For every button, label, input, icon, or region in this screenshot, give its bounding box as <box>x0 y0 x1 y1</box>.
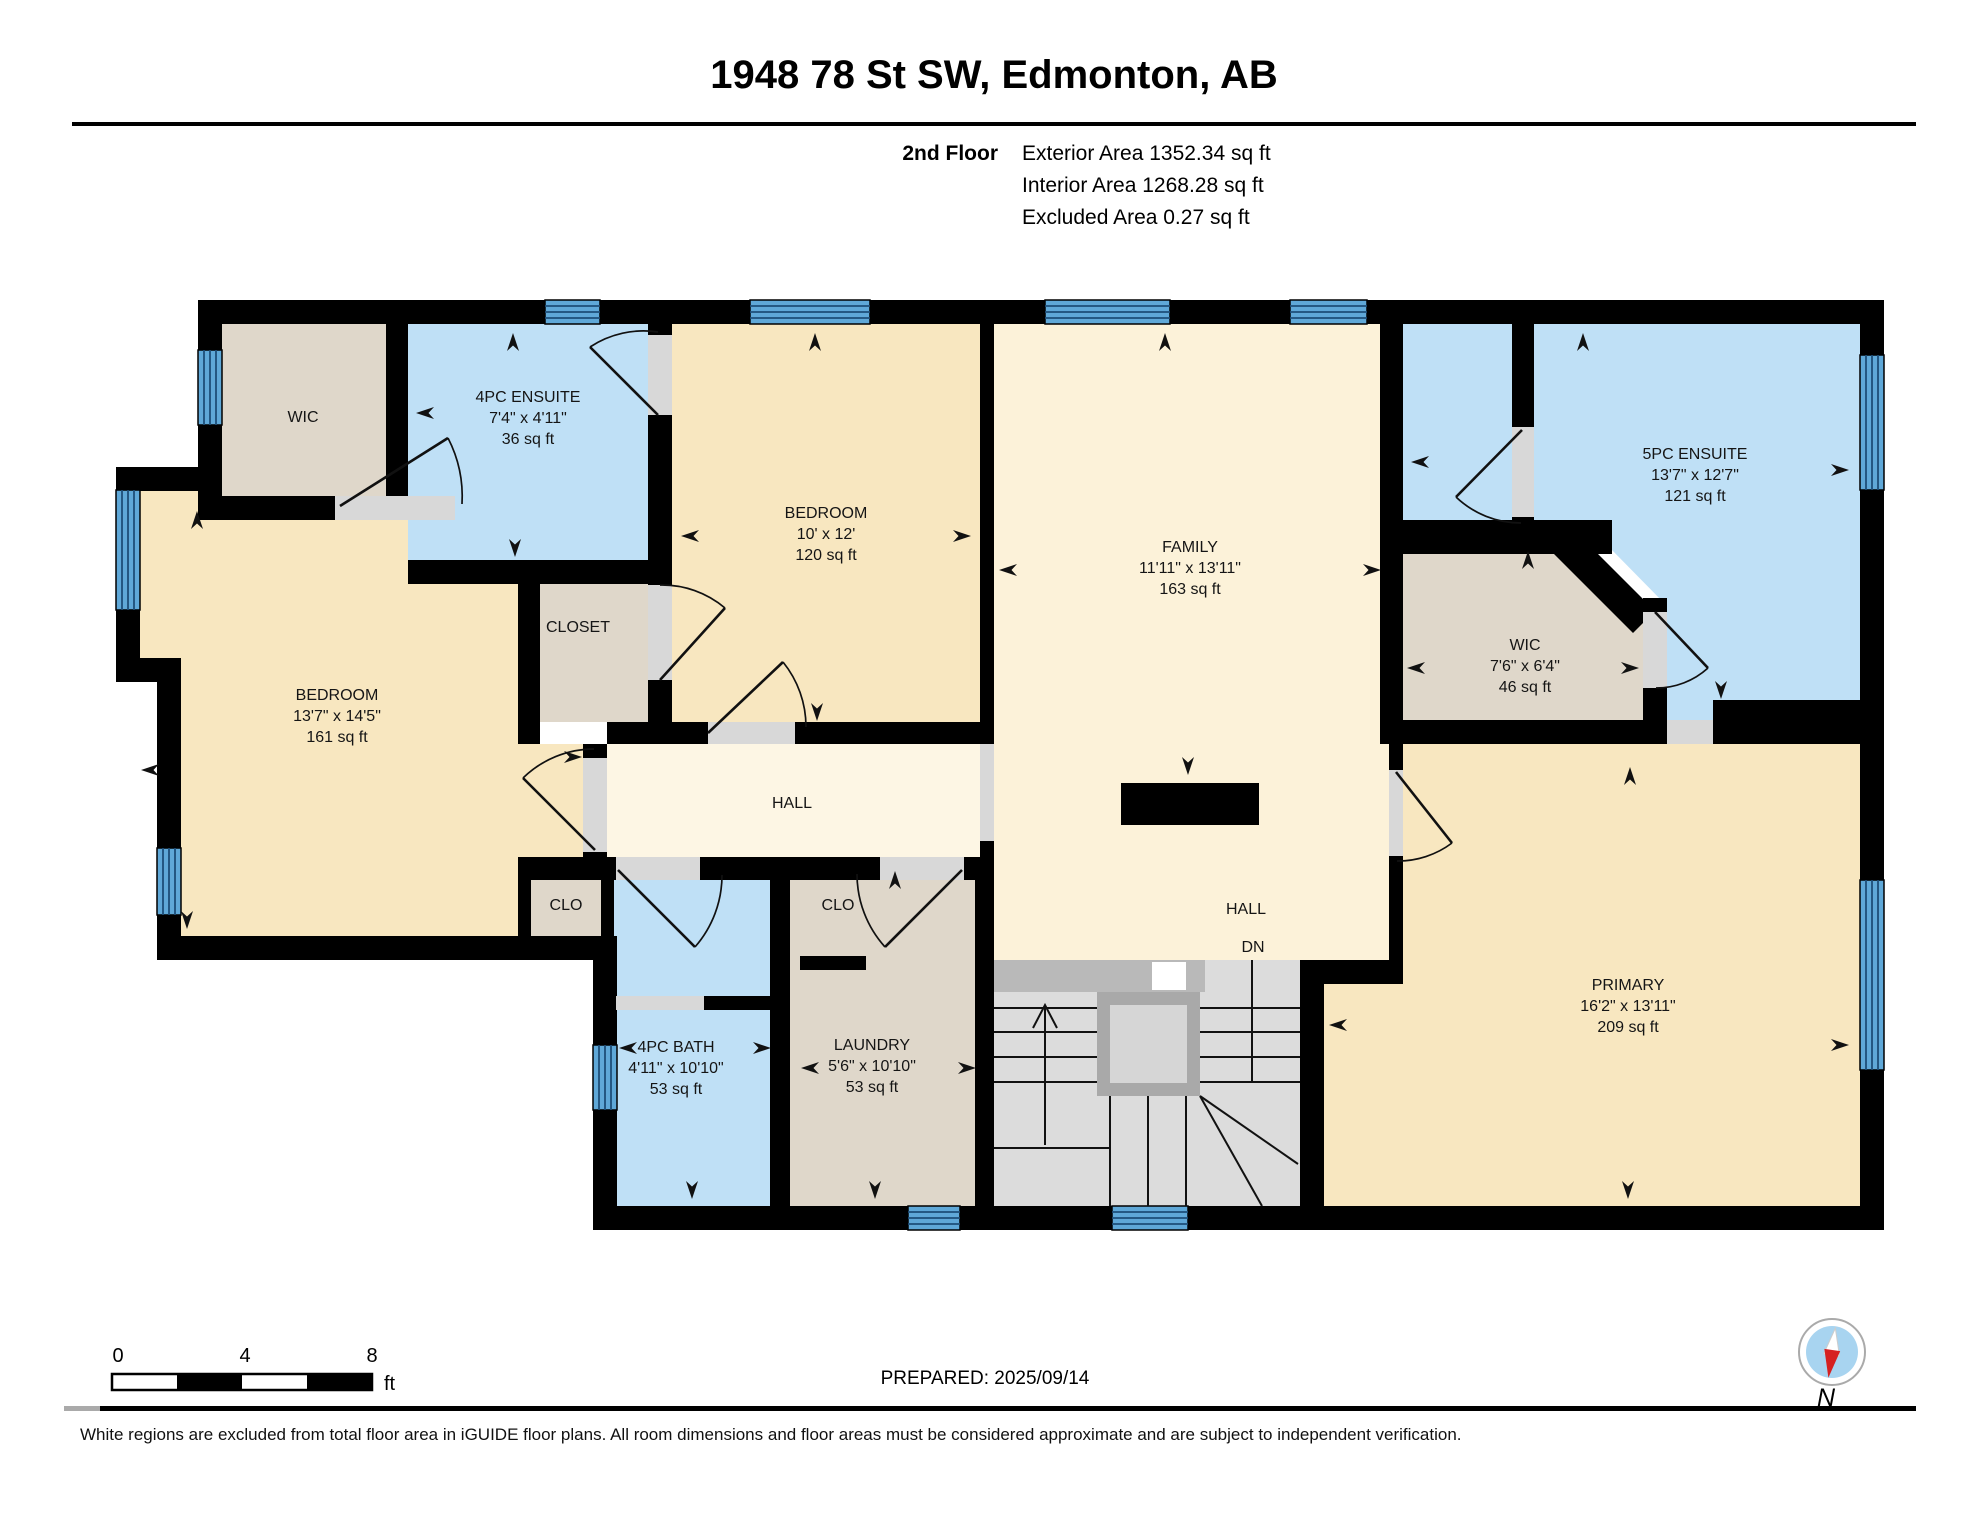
disclaimer-text: White regions are excluded from total fl… <box>80 1425 1462 1444</box>
room-area-primary: 209 sq ft <box>1597 1019 1659 1036</box>
scale-tick-8: 8 <box>366 1345 377 1367</box>
room-dims-wic-right: 7'6" x 6'4" <box>1490 658 1560 675</box>
room-label-clo-right: CLO <box>822 897 855 914</box>
wall-laundry-stairs <box>975 880 994 1206</box>
dimension-arrow-icon <box>141 764 159 776</box>
window-icon <box>1290 300 1367 324</box>
room-area-laundry: 53 sq ft <box>846 1079 899 1096</box>
room-label-hall2: HALL <box>1226 901 1266 918</box>
room-area-bedroom1: 161 sq ft <box>306 729 368 746</box>
header-divider <box>72 122 1916 126</box>
footer: 0 4 8 ft PREPARED: 2025/09/14 N White re… <box>64 1319 1916 1444</box>
room-label-bedroom1: BEDROOM <box>296 687 379 704</box>
room-label-hall1: HALL <box>772 795 812 812</box>
scale-bar-segment <box>307 1374 372 1390</box>
wall-wic-ensuite4-divider <box>386 300 408 520</box>
wall-bedroom1-bottom <box>157 936 617 960</box>
room-dims-laundry: 5'6" x 10'10" <box>828 1058 916 1075</box>
prepared-date: PREPARED: 2025/09/14 <box>881 1368 1090 1389</box>
room-area-bedroom2: 120 sq ft <box>795 547 857 564</box>
wall-bottom <box>593 1206 1884 1230</box>
wall-closet-left <box>518 560 540 744</box>
room-area-ensuite4: 36 sq ft <box>502 431 555 448</box>
cased-opening <box>1667 720 1713 744</box>
wall-clo-right-stub <box>800 956 866 970</box>
stat-interior: Interior Area 1268.28 sq ft <box>1022 174 1264 197</box>
stair-band-notch <box>1152 962 1186 990</box>
footer-divider-gray-tip <box>64 1406 100 1411</box>
wall-bath-laundry-divider <box>770 880 790 1206</box>
room-label-ensuite4: 4PC ENSUITE <box>476 389 581 406</box>
window-icon <box>198 350 222 425</box>
room-dims-primary: 16'2" x 13'11" <box>1580 998 1675 1015</box>
page-title: 1948 78 St SW, Edmonton, AB <box>710 53 1278 97</box>
wall-clo-left-outer <box>518 857 531 960</box>
wall-clo-left-bath <box>601 880 614 960</box>
room-ensuite5-wc-floor <box>1403 324 1512 520</box>
window-icon <box>157 848 181 915</box>
room-area-bath: 53 sq ft <box>650 1081 703 1098</box>
room-label-ensuite5: 5PC ENSUITE <box>1643 446 1748 463</box>
stair-void <box>1110 1005 1187 1083</box>
cased-opening <box>616 996 704 1010</box>
room-dims-family: 11'11" x 13'11" <box>1139 560 1241 577</box>
room-area-family: 163 sq ft <box>1159 581 1221 598</box>
room-label-family: FAMILY <box>1162 539 1218 556</box>
wall-bedroom2-family-divider <box>980 324 994 744</box>
hall-chase-stub <box>1121 783 1259 825</box>
wall-ensuite5-bottom <box>1713 700 1884 724</box>
window-icon <box>1112 1206 1188 1230</box>
scale-bar: 0 4 8 ft <box>112 1345 396 1395</box>
room-dims-ensuite4: 7'4" x 4'11" <box>489 410 567 427</box>
wall-top <box>198 300 1884 324</box>
window-icon <box>116 490 140 610</box>
room-label-wic-left: WIC <box>287 409 318 426</box>
wall-primary-jog <box>1300 960 1403 984</box>
room-dims-bedroom1: 13'7" x 14'5" <box>293 708 381 725</box>
room-primary-floor <box>1324 744 1860 1206</box>
stairs-down-label: DN <box>1241 939 1264 956</box>
room-label-wic-right: WIC <box>1509 637 1540 654</box>
floor-label: 2nd Floor <box>902 142 998 165</box>
room-label-closet: CLOSET <box>546 619 610 636</box>
room-label-primary: PRIMARY <box>1592 977 1665 994</box>
window-icon <box>750 300 870 324</box>
footer-divider <box>100 1406 1916 1411</box>
window-icon <box>1860 880 1884 1070</box>
room-dims-ensuite5: 13'7" x 12'7" <box>1651 467 1739 484</box>
cased-opening <box>980 744 994 841</box>
room-dims-bath: 4'11" x 10'10" <box>628 1060 723 1077</box>
room-dims-bedroom2: 10' x 12' <box>797 526 856 543</box>
room-area-ensuite5: 121 sq ft <box>1664 488 1726 505</box>
header: 1948 78 St SW, Edmonton, AB 2nd Floor Ex… <box>72 53 1916 229</box>
window-icon <box>545 300 600 324</box>
window-icon <box>593 1045 617 1110</box>
room-family-hall2-floor <box>994 324 1389 960</box>
room-label-bedroom2: BEDROOM <box>785 505 868 522</box>
scale-bar-segment <box>177 1374 242 1390</box>
stat-exterior: Exterior Area 1352.34 sq ft <box>1022 142 1271 165</box>
room-label-laundry: LAUNDRY <box>834 1037 911 1054</box>
window-icon <box>908 1206 960 1230</box>
window-icon <box>1860 355 1884 490</box>
scale-unit: ft <box>384 1373 396 1395</box>
room-area-wic-right: 46 sq ft <box>1499 679 1552 696</box>
scale-tick-0: 0 <box>112 1345 123 1367</box>
wall-primary-top-left <box>1389 720 1667 744</box>
room-label-bath: 4PC BATH <box>637 1039 714 1056</box>
room-label-clo-left: CLO <box>550 897 583 914</box>
room-bedroom2-floor <box>672 324 980 722</box>
room-closet-floor <box>540 584 648 722</box>
compass-needle-icon <box>1799 1319 1865 1385</box>
window-icon <box>1045 300 1170 324</box>
wall-hall1-top <box>607 722 994 744</box>
stat-excluded: Excluded Area 0.27 sq ft <box>1022 206 1250 229</box>
wall-stairs-right <box>1300 984 1324 1206</box>
scale-tick-4: 4 <box>239 1345 250 1367</box>
floor-plan-page: 1948 78 St SW, Edmonton, AB 2nd Floor Ex… <box>0 0 1988 1536</box>
